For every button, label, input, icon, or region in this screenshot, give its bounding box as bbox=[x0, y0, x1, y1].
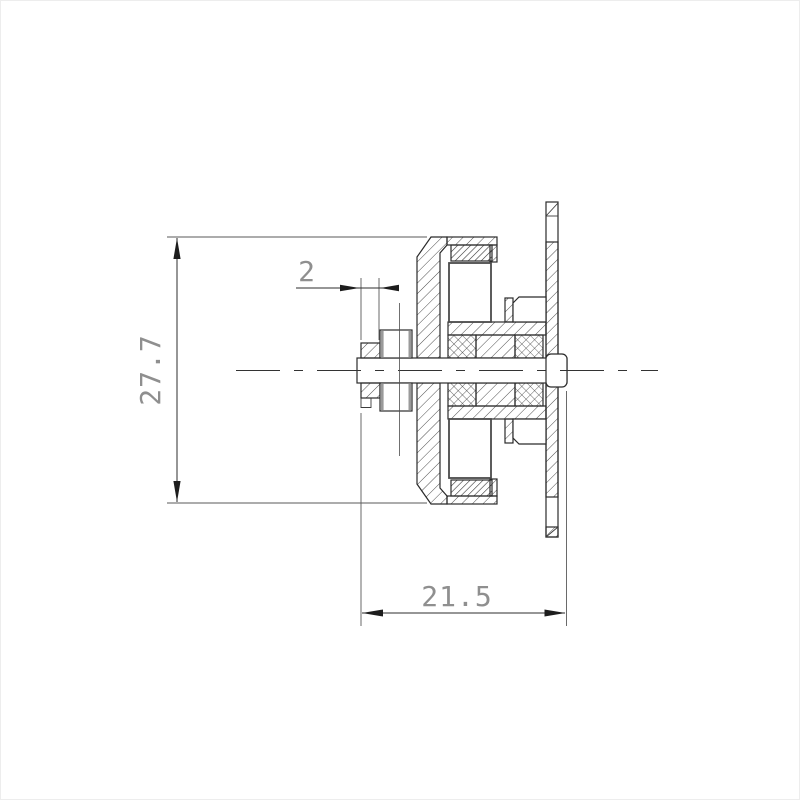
stator-window-bottom bbox=[449, 419, 491, 478]
bell-front-wall-top bbox=[417, 237, 447, 358]
collar-sleeve-bottom bbox=[380, 383, 412, 411]
technical-drawing: 27.7 2 21.5 bbox=[0, 0, 800, 800]
collar-step bbox=[361, 398, 371, 408]
arrow-right bbox=[340, 285, 360, 292]
magnet-bottom bbox=[451, 480, 492, 496]
motor-cross-section bbox=[236, 202, 658, 537]
motor-length-label: 21.5 bbox=[421, 580, 492, 613]
collar-width-label: 2 bbox=[298, 255, 316, 288]
arrow-left bbox=[362, 610, 383, 617]
arrow-left bbox=[381, 285, 400, 292]
bell-bottom-band bbox=[447, 496, 497, 504]
motor-diameter-label: 27.7 bbox=[134, 334, 167, 405]
bell-top-band bbox=[447, 237, 497, 245]
collar-sleeve-top bbox=[380, 330, 412, 358]
stator-window-top bbox=[449, 263, 491, 322]
flange-screw-boss-top bbox=[505, 297, 546, 322]
arrow-up bbox=[173, 238, 180, 259]
dimension-collar-width: 2 bbox=[296, 255, 399, 340]
flange-screw-boss-bottom bbox=[505, 419, 546, 444]
magnet-top bbox=[451, 245, 492, 261]
drawing-canvas: 27.7 2 21.5 bbox=[0, 0, 800, 800]
arrow-right bbox=[545, 610, 566, 617]
bell-front-wall-bottom bbox=[417, 383, 447, 504]
collar-flange-bottom bbox=[361, 383, 380, 398]
arrow-down bbox=[173, 481, 180, 502]
collar-flange-top bbox=[361, 343, 380, 358]
